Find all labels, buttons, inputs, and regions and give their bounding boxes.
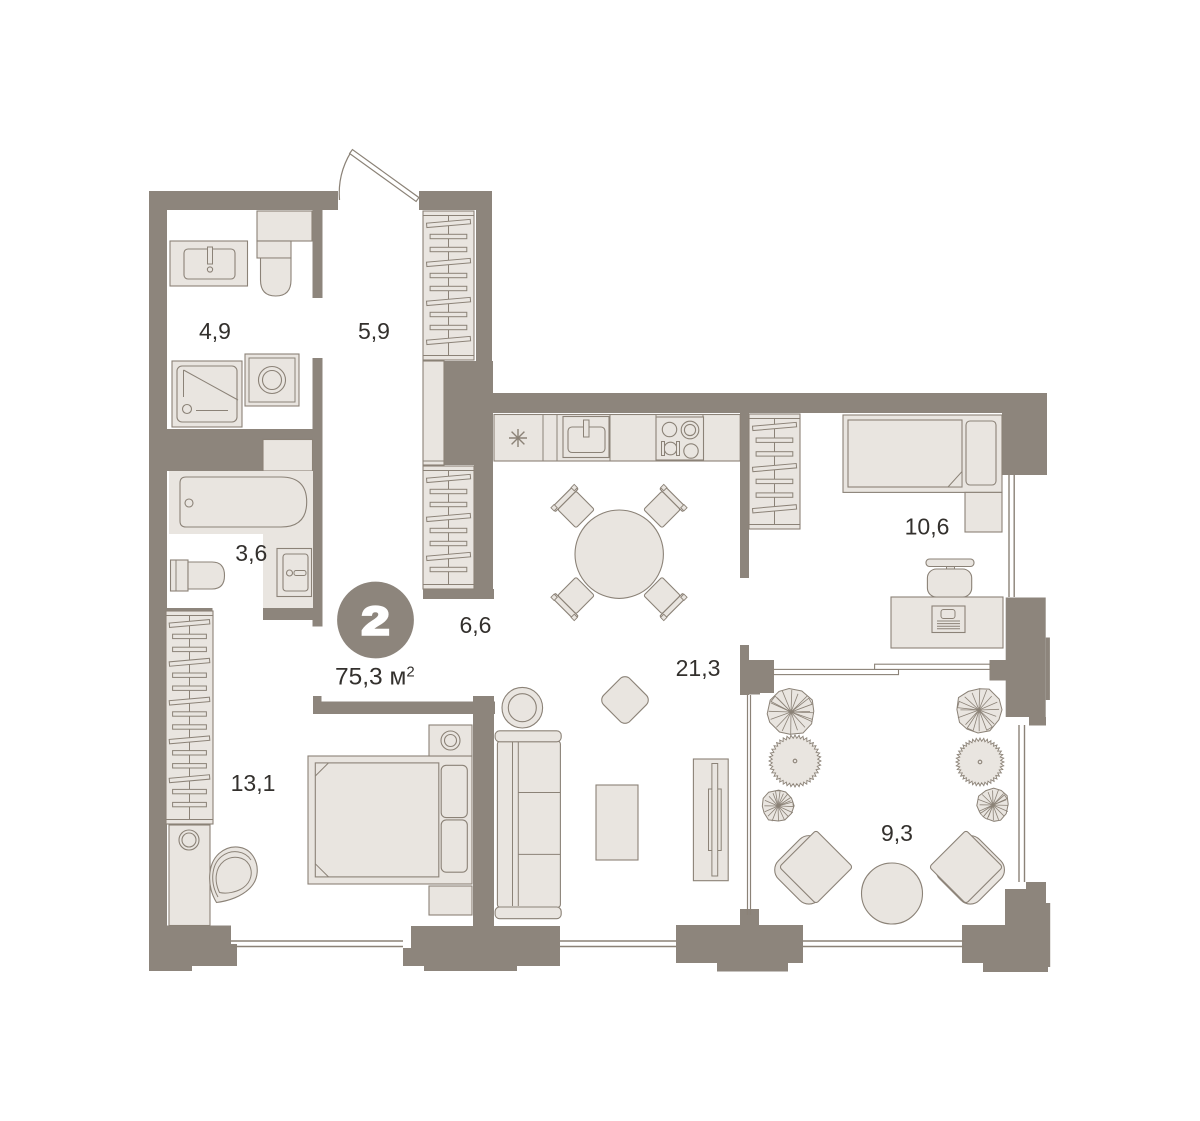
svg-text:13,1: 13,1 bbox=[231, 770, 276, 796]
svg-text:6,6: 6,6 bbox=[460, 612, 492, 638]
svg-text:21,3: 21,3 bbox=[676, 655, 721, 681]
svg-text:3,6: 3,6 bbox=[235, 540, 267, 566]
svg-text:5,9: 5,9 bbox=[358, 318, 390, 344]
svg-text:2: 2 bbox=[362, 600, 390, 644]
svg-text:10,6: 10,6 bbox=[905, 514, 950, 540]
svg-text:9,3: 9,3 bbox=[881, 820, 913, 846]
svg-text:75,3 м2: 75,3 м2 bbox=[335, 663, 415, 691]
svg-text:4,9: 4,9 bbox=[199, 318, 231, 344]
